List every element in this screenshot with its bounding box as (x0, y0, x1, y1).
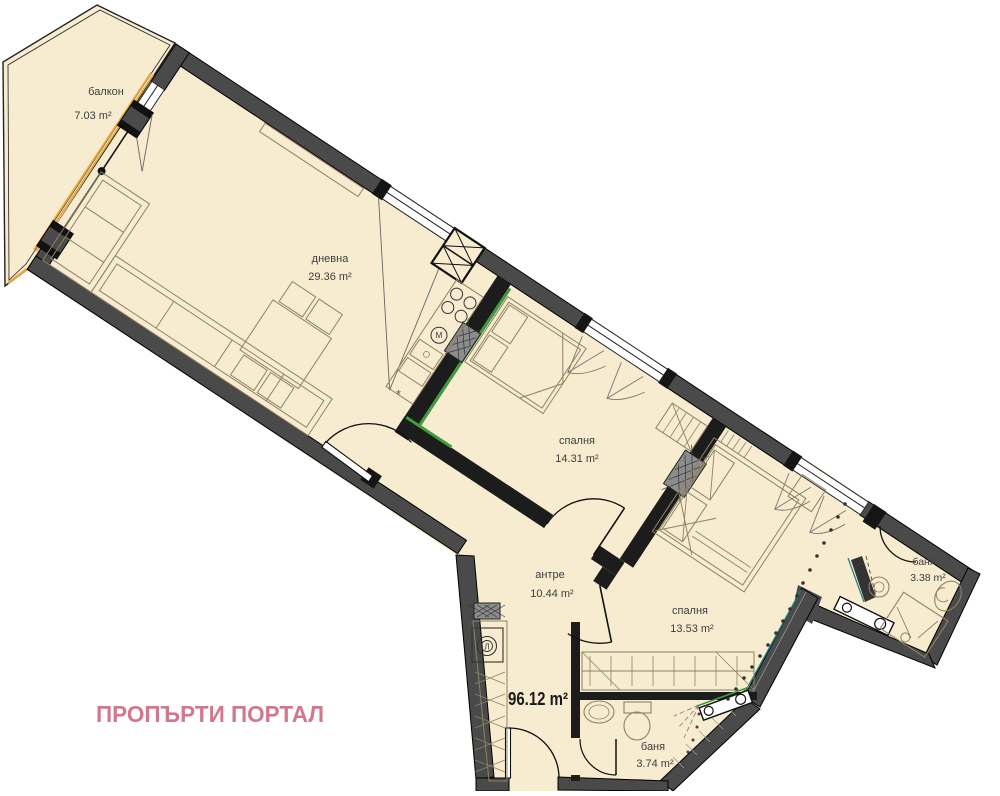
svg-text:Л: Л (484, 643, 489, 652)
svg-text:*: * (396, 387, 401, 401)
svg-text:баня: баня (641, 741, 665, 753)
svg-text:3.38 m²: 3.38 m² (910, 572, 946, 584)
svg-text:10.44 m²: 10.44 m² (530, 588, 574, 600)
svg-text:дневна: дневна (312, 253, 350, 265)
svg-text:баня: баня (912, 556, 935, 568)
svg-text:96.12 m²: 96.12 m² (508, 689, 568, 709)
svg-text:29.36 m²: 29.36 m² (308, 271, 352, 283)
svg-text:14.31 m²: 14.31 m² (555, 453, 599, 465)
svg-text:балкон: балкон (88, 86, 124, 98)
svg-text:M: M (436, 331, 443, 340)
svg-text:7.03 m²: 7.03 m² (74, 110, 112, 122)
svg-text:спалня: спалня (672, 605, 708, 617)
svg-text:спалня: спалня (559, 435, 595, 447)
svg-text:антре: антре (535, 569, 564, 581)
svg-text:13.53 m²: 13.53 m² (670, 623, 714, 635)
svg-text:ПРОПЪРТИ ПОРТАЛ: ПРОПЪРТИ ПОРТАЛ (96, 701, 324, 727)
svg-text:3.74 m²: 3.74 m² (636, 758, 674, 770)
